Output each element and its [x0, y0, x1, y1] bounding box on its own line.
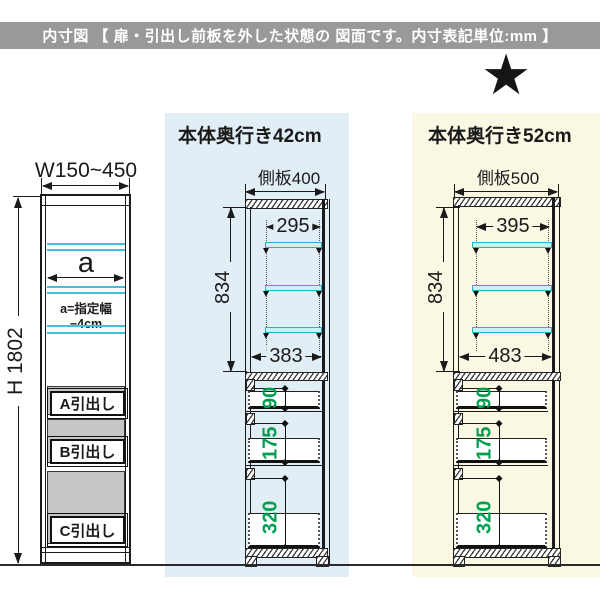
dimension-diagram: 内寸図 【 扉・引出し前板を外した状態の 図面です。内寸表記単位:mm 】 ★ … — [0, 0, 600, 600]
right-drawer-dim-line-b — [499, 423, 501, 462]
right-shelf — [472, 285, 552, 291]
left-shelf-width-arrow — [48, 277, 123, 278]
right-shelf-depth-label: 395 — [493, 216, 532, 236]
shelf-pin-marker — [263, 291, 269, 297]
right-drawer-box-b — [456, 438, 547, 463]
shelf-pin-marker — [263, 333, 269, 339]
middle-drawer-ref-line-c — [252, 478, 285, 479]
right-fixed-shelf-panel — [453, 372, 561, 381]
middle-side-arrow — [246, 191, 324, 192]
middle-drawer-dim-line-a — [285, 388, 287, 408]
ground-line — [0, 564, 600, 566]
right-side-panel-label: 側板500 — [466, 164, 550, 189]
star-icon: ★ — [481, 47, 531, 103]
right-drawer-dim-a: 90 — [473, 383, 497, 413]
middle-side-tick-right — [325, 184, 326, 200]
shelf-pin-marker — [263, 248, 269, 254]
middle-inner-depth-label: 383 — [266, 346, 305, 366]
middle-drawer-dim-c: 320 — [259, 490, 283, 545]
middle-side-panel-label: 側板400 — [248, 164, 330, 189]
middle-shelf — [265, 242, 322, 248]
left-base-line — [40, 552, 131, 553]
left-base-line — [40, 547, 131, 548]
right-top-panel — [453, 197, 561, 207]
middle-shelf — [265, 285, 322, 291]
middle-drawer-divider — [246, 411, 322, 412]
right-bottom-panel — [453, 548, 561, 558]
left-shelf-line — [47, 292, 125, 294]
left-shelf-line — [47, 325, 125, 327]
left-cabinet-inner-top-line — [42, 205, 129, 206]
left-width-label: W150~450 — [28, 159, 144, 183]
shelf-pin-marker — [316, 291, 322, 297]
middle-drawer-dim-line-c — [285, 478, 287, 547]
middle-drawer-dim-b: 175 — [259, 424, 283, 462]
left-height-arrow-top — [18, 198, 19, 316]
shelf-pin-marker — [473, 333, 479, 339]
left-drawer-label-a: A引出し — [50, 391, 125, 416]
shelf-pin-marker — [545, 291, 551, 297]
middle-back-outer-line — [329, 199, 330, 564]
middle-title: 本体奥行き42cm — [178, 121, 322, 148]
right-drawer-dim-b: 175 — [473, 424, 497, 462]
left-height-label: H 1802 — [2, 316, 30, 406]
right-drawer-divider — [454, 465, 548, 466]
right-drawer-box-a — [456, 391, 547, 409]
right-drawer-dim-c: 320 — [473, 490, 497, 545]
middle-top-panel — [245, 199, 328, 209]
right-drawer-dim-line-c — [499, 478, 501, 547]
right-drawer-divider — [454, 411, 548, 412]
right-shelf — [472, 242, 552, 248]
right-side-arrow — [455, 191, 557, 192]
middle-drawer-dim-line-b — [285, 423, 287, 462]
left-shelf-line — [47, 332, 125, 334]
shelf-pin-marker — [473, 248, 479, 254]
right-drawer-box-c — [456, 513, 547, 548]
middle-fixed-shelf-panel — [245, 372, 328, 381]
left-shelf-line — [47, 286, 125, 288]
middle-shelf — [265, 327, 322, 333]
shelf-pin-marker — [316, 333, 322, 339]
right-title: 本体奥行き52cm — [428, 121, 572, 148]
right-drawer-dim-line-a — [499, 388, 501, 408]
left-drawer-label-c: C引出し — [50, 516, 125, 544]
middle-inner-height-label: 834 — [211, 262, 236, 312]
shelf-pin-marker — [545, 248, 551, 254]
middle-drawer-divider — [246, 465, 322, 466]
left-shelf-line — [47, 243, 125, 245]
right-inner-depth-label: 483 — [485, 346, 524, 366]
left-height-arrow-bottom — [18, 406, 19, 563]
right-inner-height-label: 834 — [424, 262, 449, 312]
shelf-pin-marker — [473, 291, 479, 297]
shelf-pin-marker — [545, 333, 551, 339]
middle-drawer-dim-a: 90 — [259, 383, 283, 413]
left-drawer-label-b: B引出し — [50, 439, 125, 464]
right-drawer-ref-line-c — [460, 478, 499, 479]
shelf-pin-marker — [316, 248, 322, 254]
middle-shelf-depth-label: 295 — [273, 216, 312, 236]
left-width-arrow — [43, 185, 128, 186]
right-shelf — [472, 327, 552, 333]
